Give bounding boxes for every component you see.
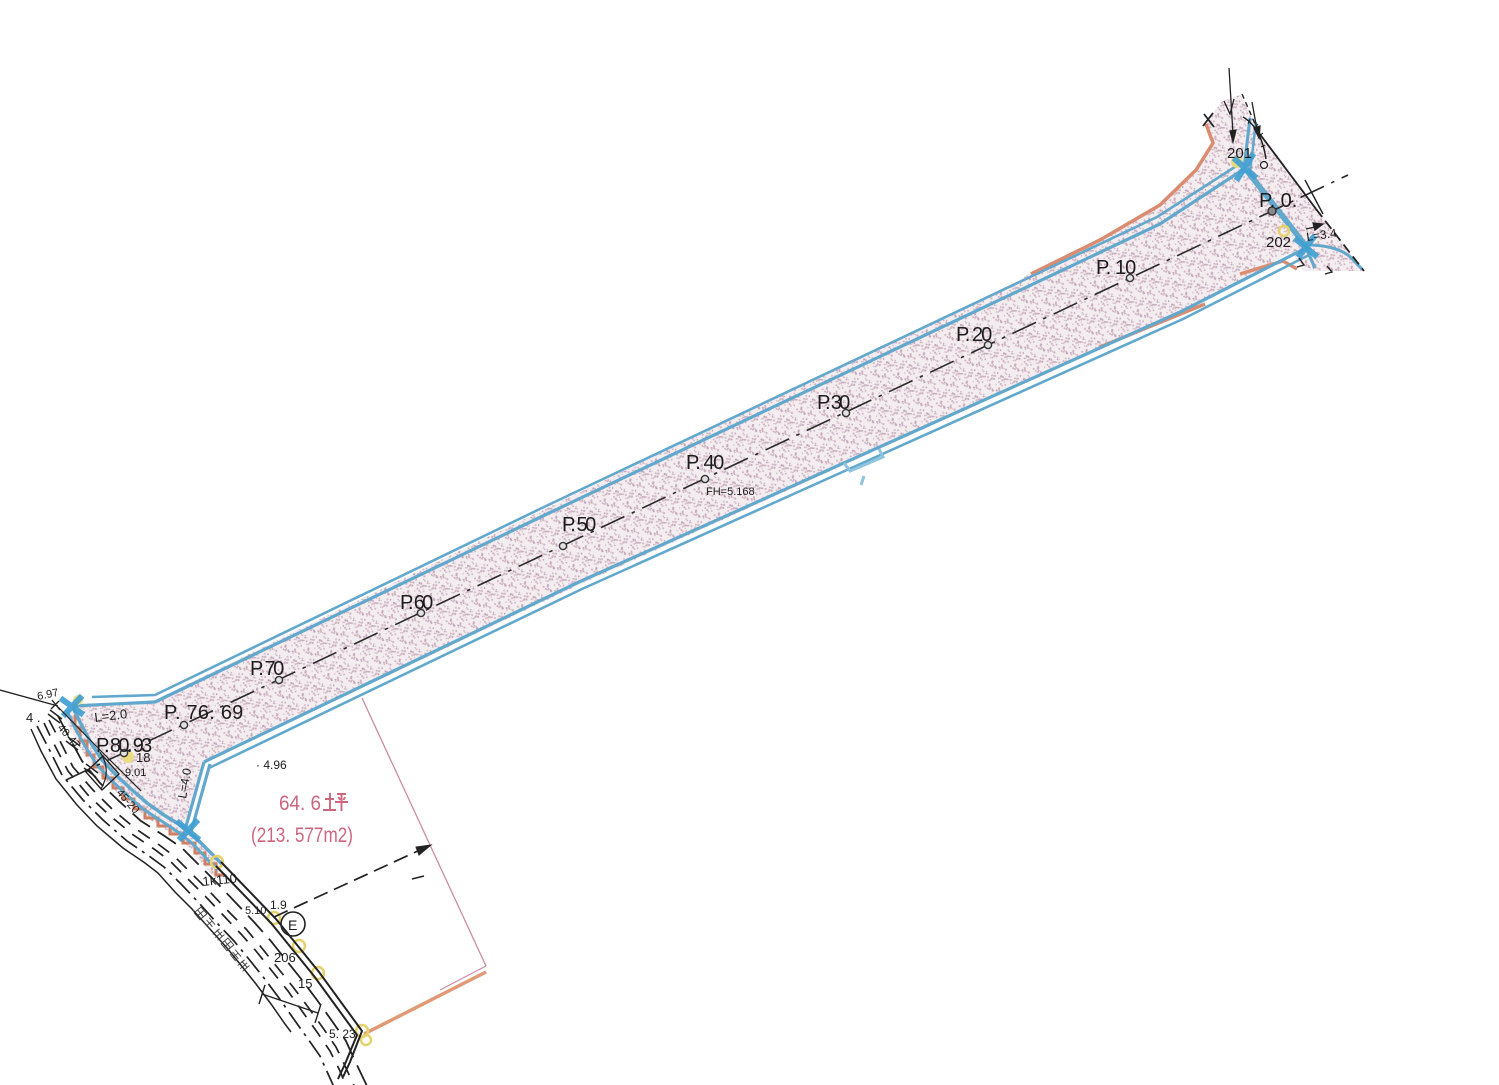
svg-text:P. 76. 69: P. 76. 69 xyxy=(164,702,243,724)
svg-text:5.10: 5.10 xyxy=(245,905,266,917)
svg-text:· 4.96: · 4.96 xyxy=(256,758,287,772)
svg-text:206: 206 xyxy=(274,950,296,965)
svg-text:E: E xyxy=(288,917,297,933)
svg-text:P. 60: P. 60 xyxy=(400,592,433,614)
svg-text:P. 70: P. 70 xyxy=(250,658,284,680)
svg-text:4 .: 4 . xyxy=(26,710,40,725)
svg-text:P. 50: P. 50 xyxy=(562,514,596,536)
svg-text:15: 15 xyxy=(298,976,312,991)
svg-text:1k110: 1k110 xyxy=(202,870,238,889)
svg-text:18: 18 xyxy=(136,750,150,765)
svg-text:P. 30: P. 30 xyxy=(817,392,850,414)
svg-text:6.97: 6.97 xyxy=(36,687,59,703)
svg-text:202: 202 xyxy=(1266,234,1291,251)
svg-text:1.9: 1.9 xyxy=(270,898,287,912)
svg-text:201: 201 xyxy=(1227,145,1252,162)
svg-text:64. 6: 64. 6 xyxy=(279,792,321,815)
svg-text:P. 40: P. 40 xyxy=(686,452,724,474)
svg-text:P. 0.: P. 0. xyxy=(1259,190,1297,212)
svg-text:FH=5.168: FH=5.168 xyxy=(706,486,755,498)
svg-text:9.01: 9.01 xyxy=(125,767,146,779)
svg-text:(213. 577m2): (213. 577m2) xyxy=(251,824,353,847)
svg-text:P. 20: P. 20 xyxy=(956,324,992,346)
svg-text:P. 10: P. 10 xyxy=(1096,257,1136,279)
svg-text:5. 23: 5. 23 xyxy=(329,1027,356,1041)
